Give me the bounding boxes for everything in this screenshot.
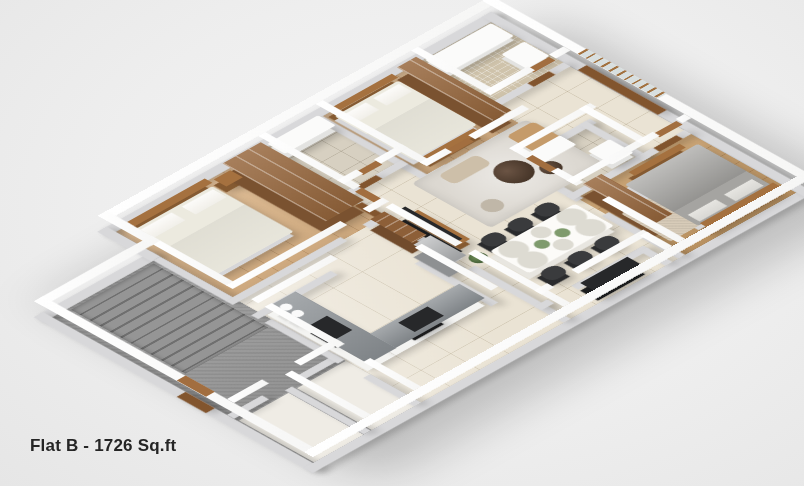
floor-plan-3d xyxy=(7,22,796,463)
plan-title: Flat B - 1726 Sq.ft xyxy=(30,436,176,456)
flat-b-floorplan-render: Flat B - 1726 Sq.ft xyxy=(0,0,804,486)
